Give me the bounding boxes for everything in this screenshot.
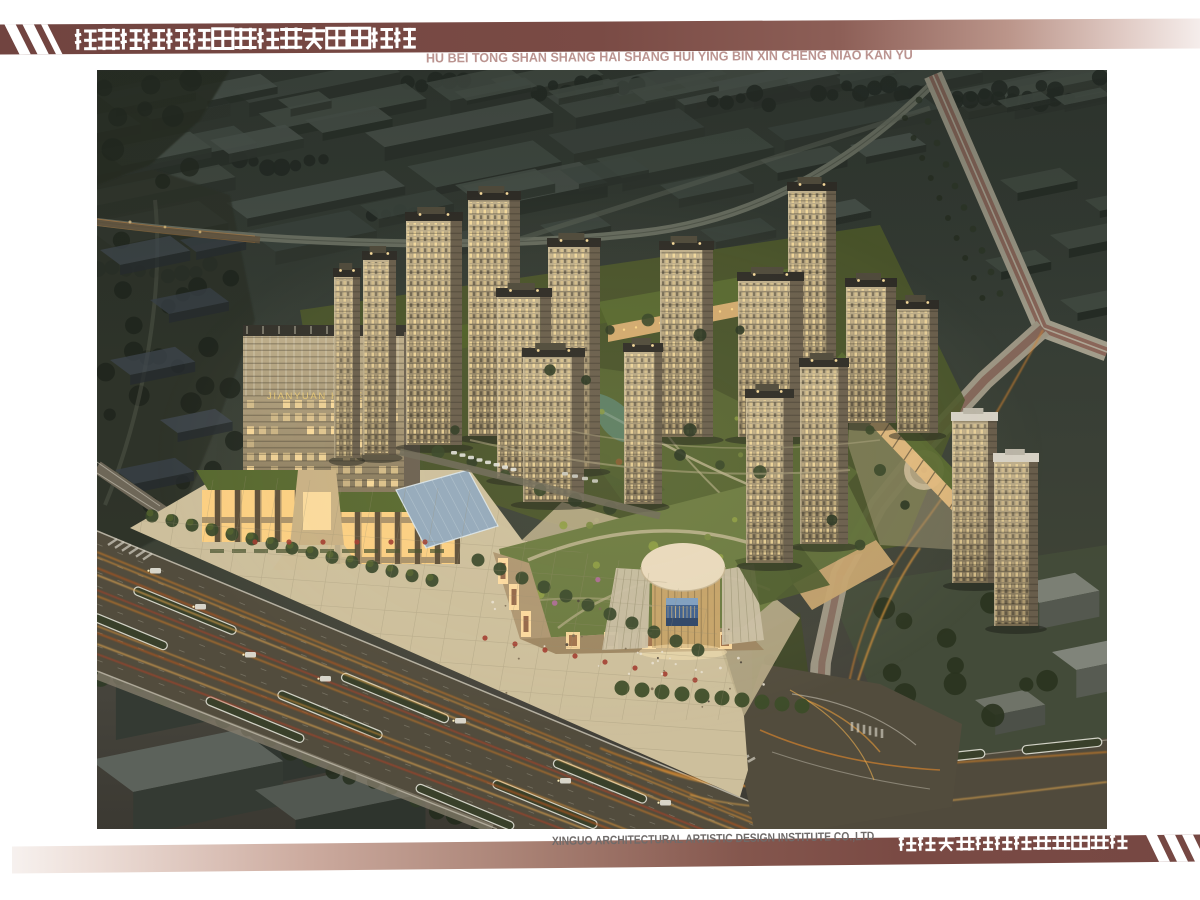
- svg-text:HU BEI TONG SHAN SHANG HAI SHA: HU BEI TONG SHAN SHANG HAI SHANG HUI YIN…: [426, 47, 913, 66]
